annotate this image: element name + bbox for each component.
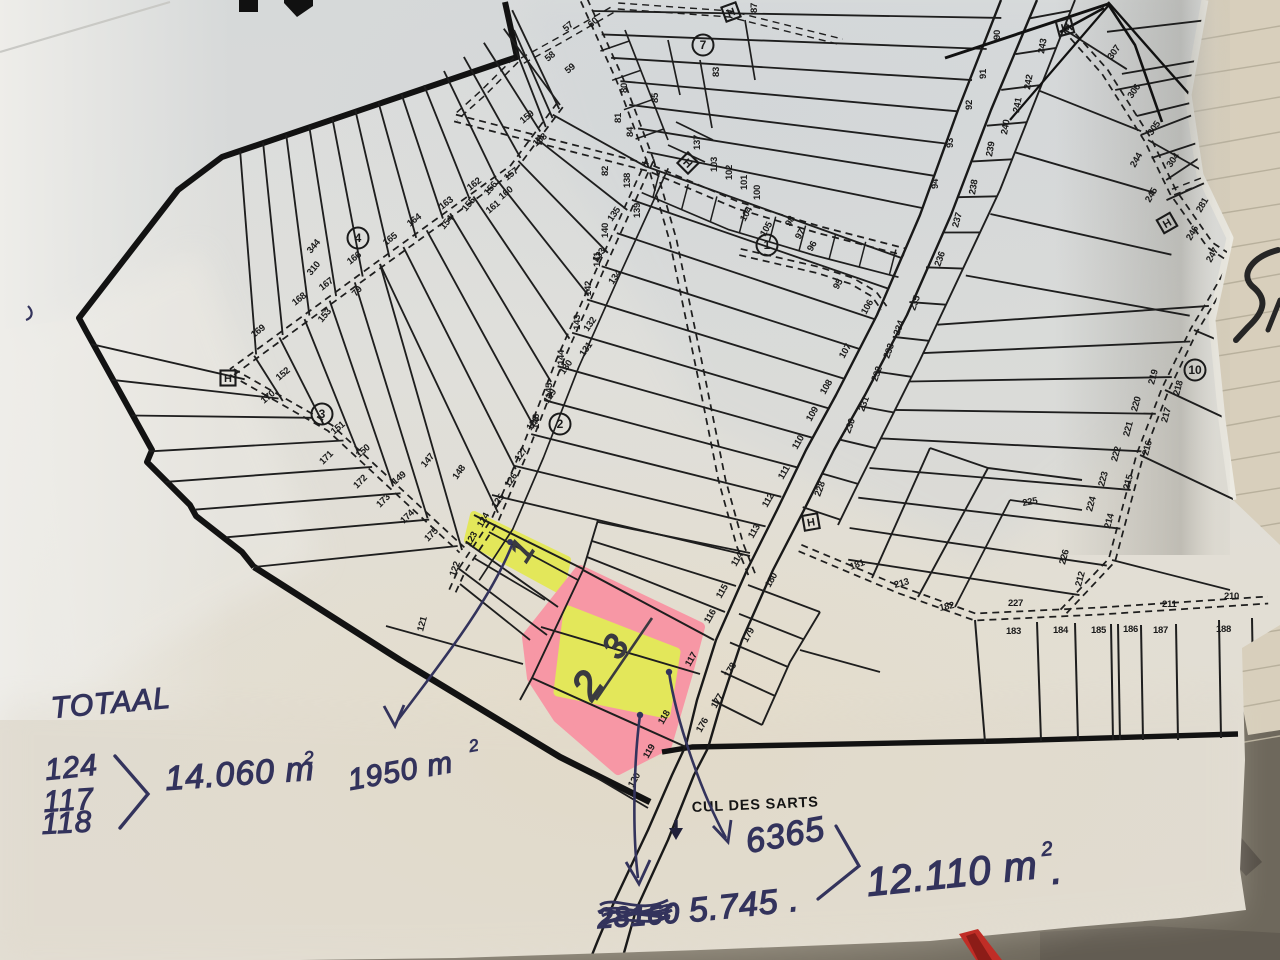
svg-text:94: 94	[930, 178, 941, 189]
svg-text:3: 3	[319, 407, 326, 421]
svg-text:227: 227	[1008, 598, 1023, 609]
svg-text:7: 7	[700, 38, 707, 52]
svg-text:85: 85	[650, 92, 661, 103]
svg-text:81: 81	[613, 112, 624, 123]
svg-text:92: 92	[964, 100, 975, 110]
svg-text:84: 84	[625, 126, 636, 137]
svg-text:H: H	[224, 373, 232, 385]
svg-text:103: 103	[709, 157, 720, 172]
svg-text:142: 142	[583, 281, 594, 296]
svg-text:138: 138	[622, 173, 633, 188]
svg-text:139: 139	[632, 203, 643, 218]
svg-text:140: 140	[600, 223, 611, 238]
svg-text:187: 187	[1153, 625, 1168, 636]
svg-text:4: 4	[355, 231, 362, 245]
svg-text:80: 80	[619, 83, 630, 93]
svg-text:137: 137	[692, 135, 703, 150]
svg-text:102: 102	[724, 165, 735, 180]
svg-text:82: 82	[600, 166, 611, 176]
svg-text:124: 124	[43, 749, 99, 787]
svg-text:184: 184	[1053, 625, 1069, 636]
svg-text:2: 2	[557, 417, 564, 431]
svg-text:87: 87	[749, 3, 760, 13]
svg-text:2: 2	[302, 747, 315, 768]
svg-text:10: 10	[1188, 363, 1202, 377]
svg-text:83: 83	[711, 67, 722, 77]
svg-text:100: 100	[752, 185, 763, 200]
svg-text:91: 91	[978, 68, 989, 79]
svg-text:183: 183	[1006, 626, 1021, 637]
svg-text:211: 211	[1162, 599, 1177, 610]
svg-text:188: 188	[1216, 624, 1231, 635]
svg-text:210: 210	[1224, 591, 1239, 602]
svg-text:118: 118	[41, 805, 93, 841]
svg-text:93: 93	[945, 138, 956, 148]
svg-text:185: 185	[1091, 625, 1107, 636]
svg-text:1: 1	[764, 238, 771, 252]
svg-text:90: 90	[992, 30, 1003, 40]
svg-text:186: 186	[1123, 624, 1138, 635]
svg-text:101: 101	[739, 174, 750, 190]
